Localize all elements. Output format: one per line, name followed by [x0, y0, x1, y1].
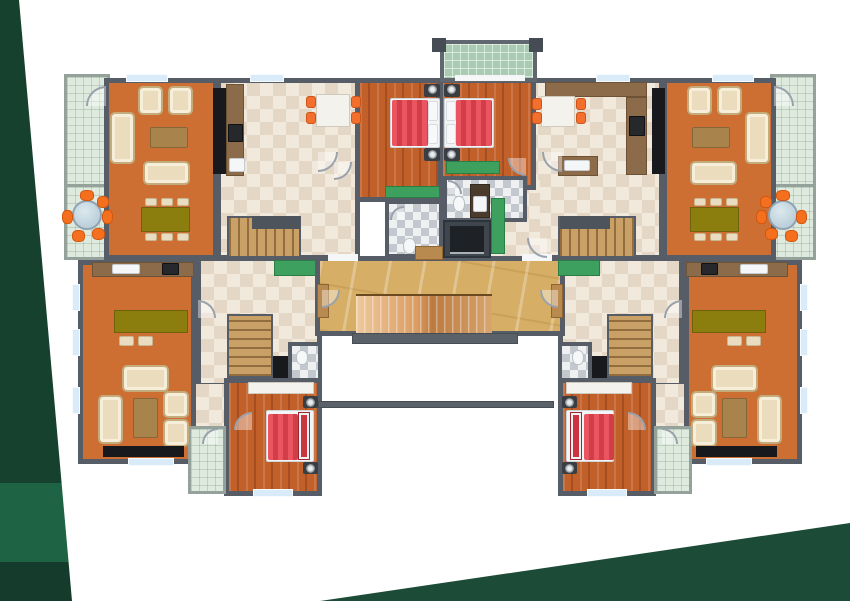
stair-main-entrance	[356, 294, 492, 334]
stair-wing-left	[227, 314, 273, 378]
kitchen-counter-tr-side	[626, 97, 647, 175]
dining-chair-tl-4	[145, 233, 157, 241]
coffee-table-tr	[692, 127, 730, 148]
bed-top-left-duvet	[392, 100, 428, 146]
bed-top-right-pillow-2	[446, 124, 456, 144]
closet-wing-right	[590, 356, 607, 378]
armchair-bl-2	[163, 419, 189, 447]
stove-tl	[228, 124, 243, 142]
stove-tr	[629, 116, 645, 136]
terrace-chair-tr-4	[765, 228, 778, 240]
bench-wing-left	[274, 260, 316, 276]
sink-tr	[564, 160, 590, 171]
coffee-table-tl	[150, 127, 188, 148]
terrace-chair-tr-5	[785, 230, 798, 242]
dining-chair-tr-1	[694, 198, 706, 206]
stove-br	[701, 263, 718, 275]
lamp-bl-2	[306, 464, 315, 473]
dresser-bedroom-top-right	[446, 161, 500, 174]
elevator-cab	[450, 226, 484, 254]
coffee-table-bl	[133, 398, 158, 438]
dining-table-bl	[114, 310, 188, 333]
dining-chair-tr-2	[710, 198, 722, 206]
armchair-tl-2	[168, 86, 193, 115]
window-right-3	[800, 387, 808, 414]
lamp-br-2	[565, 464, 574, 473]
window-bottom-living-br	[706, 458, 752, 466]
terrace-chair-tl-3	[102, 210, 113, 224]
terrace-chair-tl-4	[92, 228, 105, 240]
kitchen-chair-tl-1	[306, 96, 316, 108]
lamp-br-1	[565, 398, 574, 407]
bed-top-left-pillow-2	[428, 124, 438, 144]
bed-top-right-duvet	[456, 100, 492, 146]
dining-chair-tr-5	[710, 233, 722, 241]
loveseat-bl	[98, 395, 123, 444]
window-balcony-center-sill	[455, 75, 525, 81]
sofa-br-horizontal	[711, 365, 758, 392]
tv-wall-top-right	[652, 88, 665, 174]
terrace-chair-tr-3	[756, 210, 767, 224]
dining-chair-tr-6	[726, 233, 738, 241]
terrace-chair-tl-6	[62, 210, 73, 224]
stool-br-2	[746, 336, 761, 346]
sink-tl	[229, 158, 245, 172]
decor-corner-triangle	[320, 523, 850, 601]
tv-wall-top-left	[213, 88, 226, 174]
kitchen-table-tl	[316, 94, 350, 127]
headboard-bl	[298, 412, 310, 460]
armchair-tl-1	[138, 86, 163, 115]
stair-wing-right	[607, 314, 653, 378]
headboard-br	[570, 412, 582, 460]
window-bottom-bedroom-br	[587, 489, 627, 497]
sofa-tr-horizontal	[690, 161, 737, 185]
window-bottom-bedroom-bl	[253, 489, 293, 497]
bed-top-left-pillow-1	[428, 101, 438, 121]
lamp-tr-1	[447, 85, 456, 94]
armchair-br-2	[691, 419, 717, 447]
dining-chair-tl-1	[145, 198, 157, 206]
window-bottom-living-bl	[128, 458, 174, 466]
kitchen-chair-tr-2	[532, 112, 542, 124]
lamp-bl-1	[306, 398, 315, 407]
lamp-tl-2	[428, 150, 437, 159]
armchair-br-1	[691, 391, 717, 418]
toilet-wing-left	[296, 350, 308, 365]
kitchen-chair-tr-3	[576, 98, 586, 110]
kitchen-chair-tr-1	[532, 98, 542, 110]
dresser-bedroom-top-left	[385, 186, 440, 198]
post-balcony-center-left	[432, 38, 446, 52]
stair-top-left-landing	[252, 216, 300, 229]
window-top-living-tr	[712, 74, 754, 82]
cabinet-center-green	[491, 198, 505, 254]
bed-br-duvet	[584, 414, 614, 460]
coffee-table-br	[722, 398, 747, 438]
dining-chair-tl-5	[161, 233, 173, 241]
sink-bl	[112, 264, 140, 274]
terrace-table-tr	[768, 200, 798, 230]
stool-br-1	[727, 336, 742, 346]
sofa-tr-vertical	[745, 112, 770, 164]
dining-chair-tl-6	[177, 233, 189, 241]
corridor-wing-right	[652, 384, 684, 432]
terrace-chair-tr-6	[796, 210, 807, 224]
toilet-wing-right	[572, 350, 584, 365]
window-left-1	[72, 284, 80, 311]
sofa-tl-vertical	[110, 112, 135, 164]
terrace-chair-tr-2	[760, 196, 772, 208]
window-right-2	[800, 329, 808, 356]
dining-chair-tl-2	[161, 198, 173, 206]
dining-table-tl	[141, 207, 190, 232]
kitchen-counter-tr-top	[545, 82, 647, 97]
wardrobe-wing-left	[248, 382, 314, 394]
stool-bl-1	[119, 336, 134, 346]
terrace-chair-tr-1	[776, 190, 790, 201]
terrace-chair-tl-2	[97, 196, 109, 208]
wedge-band-middle	[0, 483, 80, 562]
toilet-bath-center-right	[453, 196, 465, 212]
stove-bl	[162, 263, 179, 275]
wedge-band-bottom	[0, 562, 80, 601]
wardrobe-wing-right	[566, 382, 632, 394]
window-top-living-tl	[126, 74, 168, 82]
bed-bl-duvet	[268, 414, 298, 460]
stair-top-right-landing	[560, 216, 610, 229]
dining-table-tr	[690, 207, 739, 232]
sink-bath-center-right	[473, 196, 487, 212]
kitchen-chair-tl-4	[351, 112, 361, 124]
bed-top-right-pillow-1	[446, 101, 456, 121]
kitchen-chair-tl-3	[351, 96, 361, 108]
door-top-hall	[415, 246, 443, 260]
post-balcony-center-right	[529, 38, 543, 52]
armchair-tr-1	[687, 86, 712, 115]
window-left-3	[72, 387, 80, 414]
kitchen-chair-tr-4	[576, 112, 586, 124]
tv-br	[696, 446, 777, 457]
stool-bl-2	[138, 336, 153, 346]
window-right-1	[800, 284, 808, 311]
door-white-hall-left	[328, 254, 358, 261]
lamp-tl-1	[428, 85, 437, 94]
terrace-chair-tl-1	[80, 190, 94, 201]
sink-br	[740, 264, 768, 274]
bench-wing-right	[558, 260, 600, 276]
dining-table-br	[692, 310, 766, 333]
window-left-2	[72, 329, 80, 356]
sofa-tl-horizontal	[143, 161, 190, 185]
floor-plan-page	[0, 0, 850, 601]
sofa-bl-horizontal	[122, 365, 169, 392]
stair-main-landing	[352, 333, 518, 344]
kitchen-table-tr	[541, 96, 575, 127]
window-top-kitchen-tl	[250, 74, 284, 82]
armchair-bl-1	[163, 391, 189, 418]
dining-chair-tl-3	[177, 198, 189, 206]
loveseat-br	[757, 395, 782, 444]
terrace-chair-tl-5	[72, 230, 85, 242]
dining-chair-tr-4	[694, 233, 706, 241]
window-top-kitchen-tr	[596, 74, 630, 82]
wall-link-between-wings	[318, 401, 554, 408]
lamp-tr-2	[447, 150, 456, 159]
armchair-tr-2	[717, 86, 742, 115]
tv-bl	[103, 446, 184, 457]
kitchen-chair-tl-2	[306, 112, 316, 124]
dining-chair-tr-3	[726, 198, 738, 206]
